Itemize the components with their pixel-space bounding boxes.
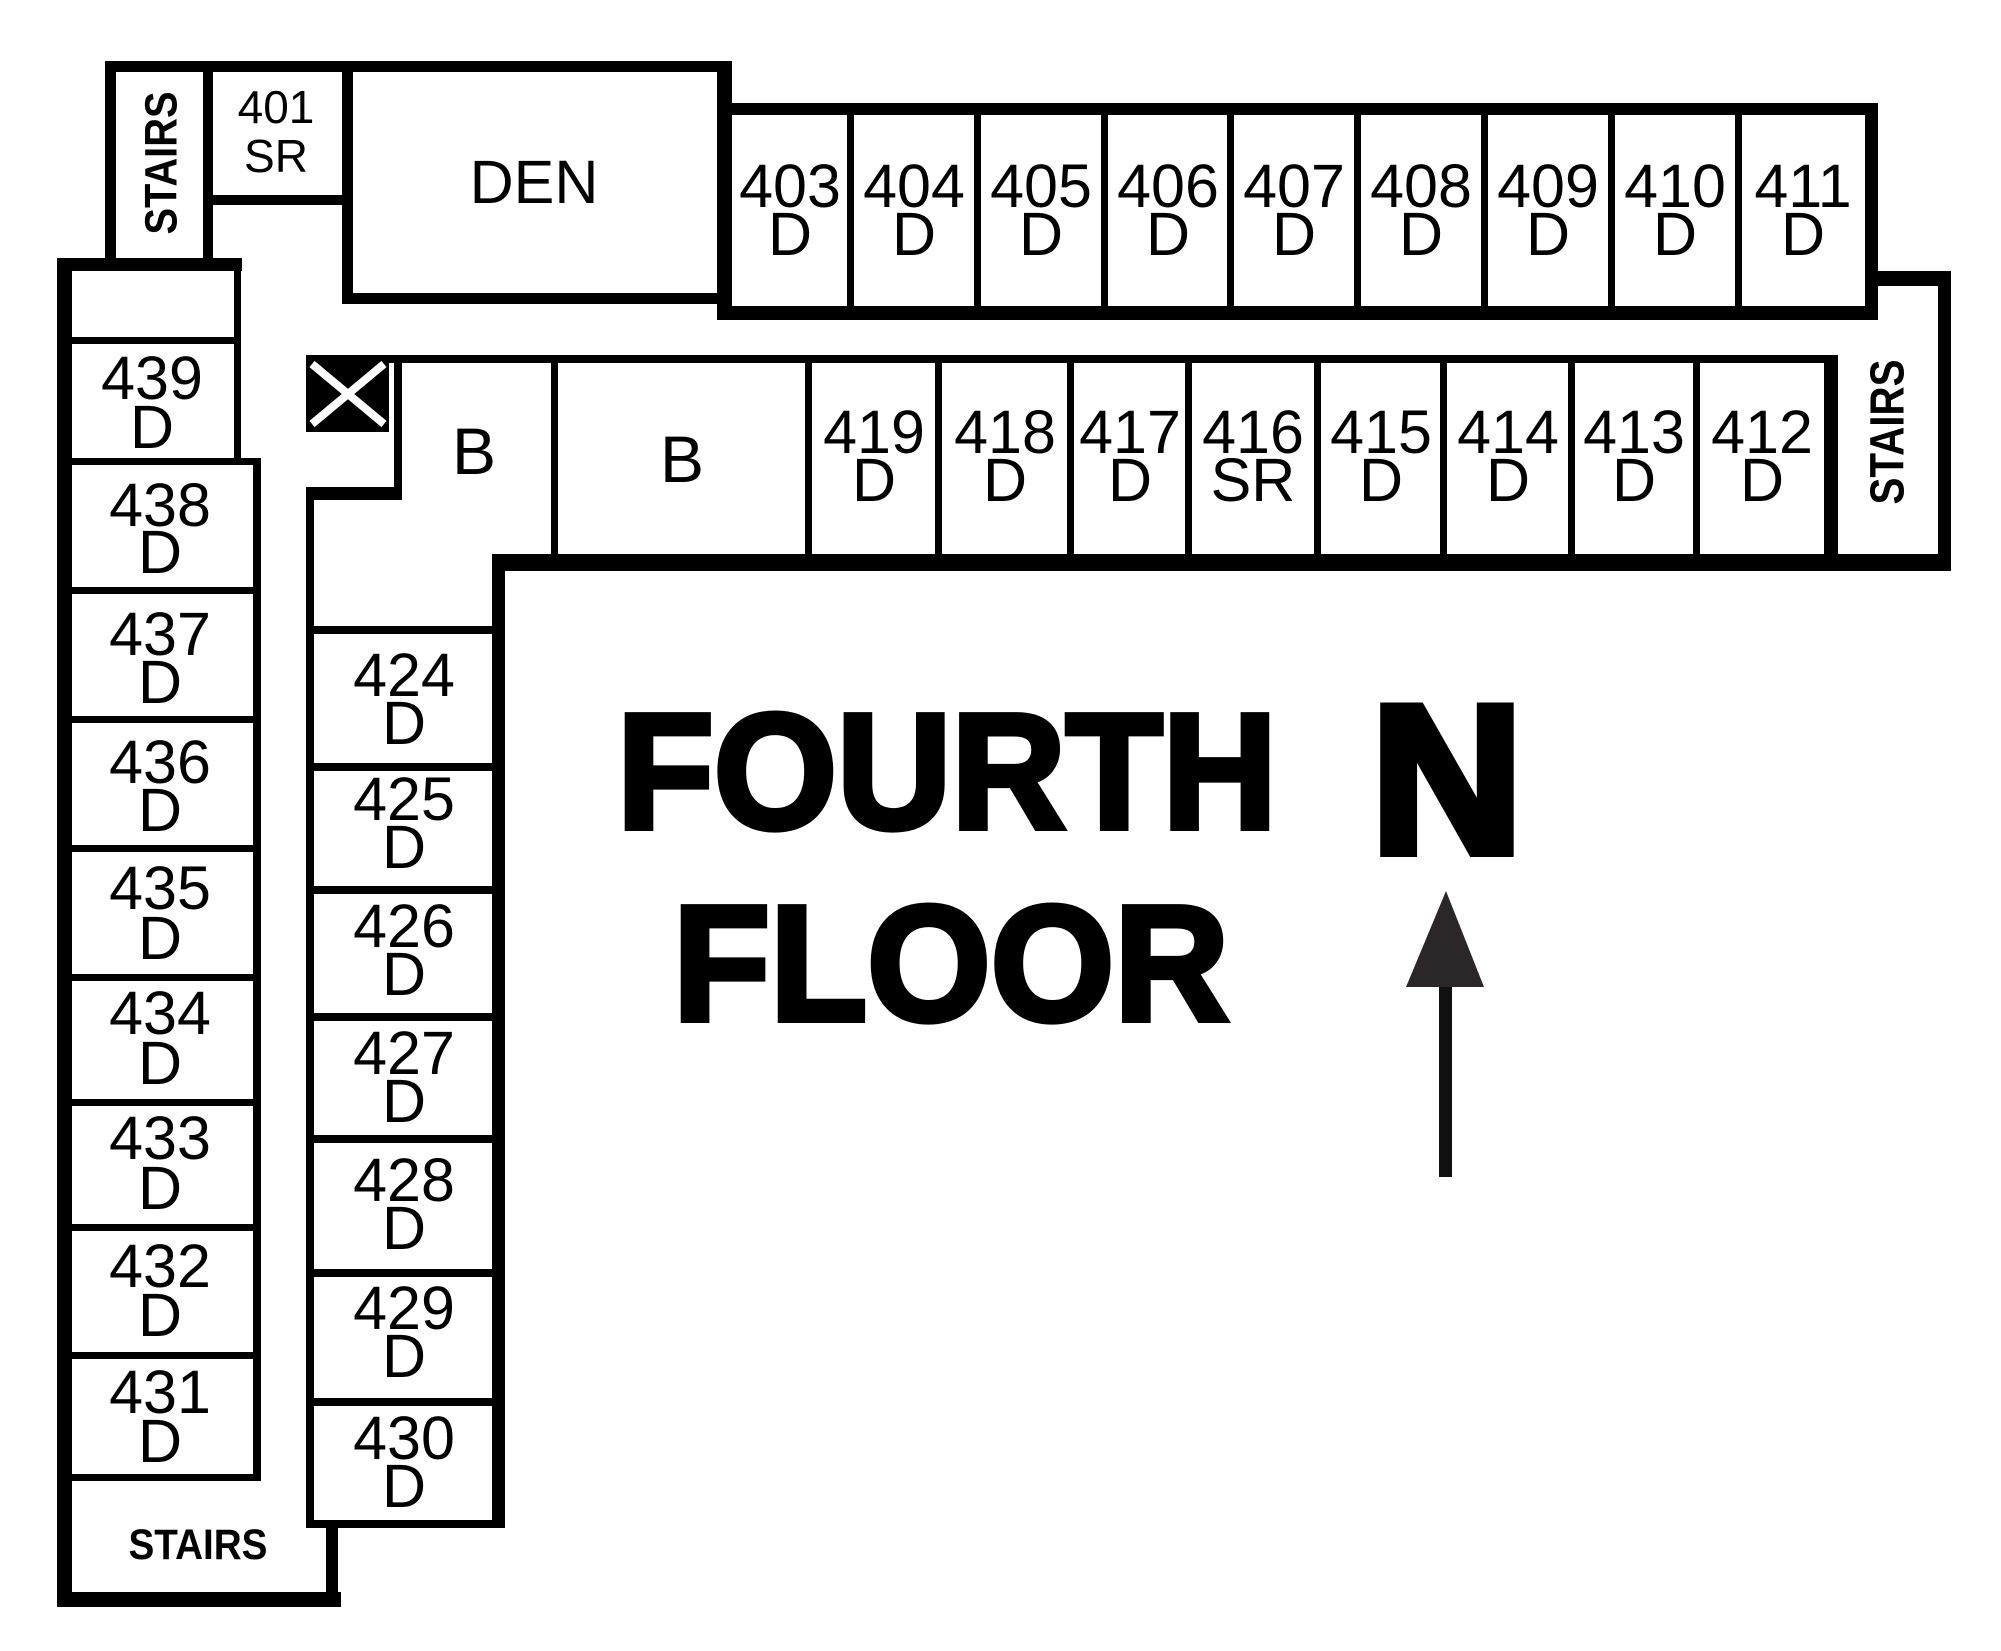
svg-text:FOURTH: FOURTH xyxy=(617,680,1277,863)
svg-text:B: B xyxy=(452,414,496,488)
svg-text:D: D xyxy=(382,1194,426,1262)
svg-text:FLOOR: FLOOR xyxy=(673,872,1229,1055)
svg-text:D: D xyxy=(892,200,936,268)
svg-text:401: 401 xyxy=(238,81,315,133)
svg-text:D: D xyxy=(1486,446,1530,514)
svg-text:D: D xyxy=(1526,200,1570,268)
svg-text:N: N xyxy=(1371,662,1523,897)
svg-text:D: D xyxy=(382,813,426,881)
svg-text:D: D xyxy=(138,648,182,716)
svg-text:D: D xyxy=(138,518,182,586)
svg-text:D: D xyxy=(138,1154,182,1222)
svg-text:D: D xyxy=(1399,200,1443,268)
svg-text:D: D xyxy=(382,940,426,1008)
svg-text:D: D xyxy=(1781,200,1825,268)
svg-text:D: D xyxy=(1612,446,1656,514)
svg-text:D: D xyxy=(1653,200,1697,268)
svg-text:B: B xyxy=(660,422,704,496)
svg-text:D: D xyxy=(138,904,182,972)
svg-text:D: D xyxy=(1272,200,1316,268)
svg-text:STAIRS: STAIRS xyxy=(129,1521,268,1569)
svg-text:D: D xyxy=(768,200,812,268)
svg-text:D: D xyxy=(138,1281,182,1349)
svg-text:STAIRS: STAIRS xyxy=(136,92,187,235)
svg-text:D: D xyxy=(382,1452,426,1520)
svg-text:D: D xyxy=(1019,200,1063,268)
svg-text:D: D xyxy=(983,446,1027,514)
svg-text:STAIRS: STAIRS xyxy=(1862,360,1915,505)
svg-text:D: D xyxy=(1108,446,1152,514)
svg-text:D: D xyxy=(382,1322,426,1390)
svg-text:D: D xyxy=(1740,446,1784,514)
svg-text:D: D xyxy=(382,1067,426,1135)
svg-text:DEN: DEN xyxy=(470,148,599,216)
svg-text:D: D xyxy=(138,776,182,844)
svg-text:D: D xyxy=(1359,446,1403,514)
svg-text:D: D xyxy=(138,1029,182,1097)
svg-text:SR: SR xyxy=(244,130,308,182)
svg-text:D: D xyxy=(852,446,896,514)
svg-text:D: D xyxy=(130,393,174,461)
svg-text:D: D xyxy=(138,1407,182,1475)
svg-text:SR: SR xyxy=(1211,446,1296,514)
svg-text:D: D xyxy=(1146,200,1190,268)
svg-text:D: D xyxy=(382,689,426,757)
